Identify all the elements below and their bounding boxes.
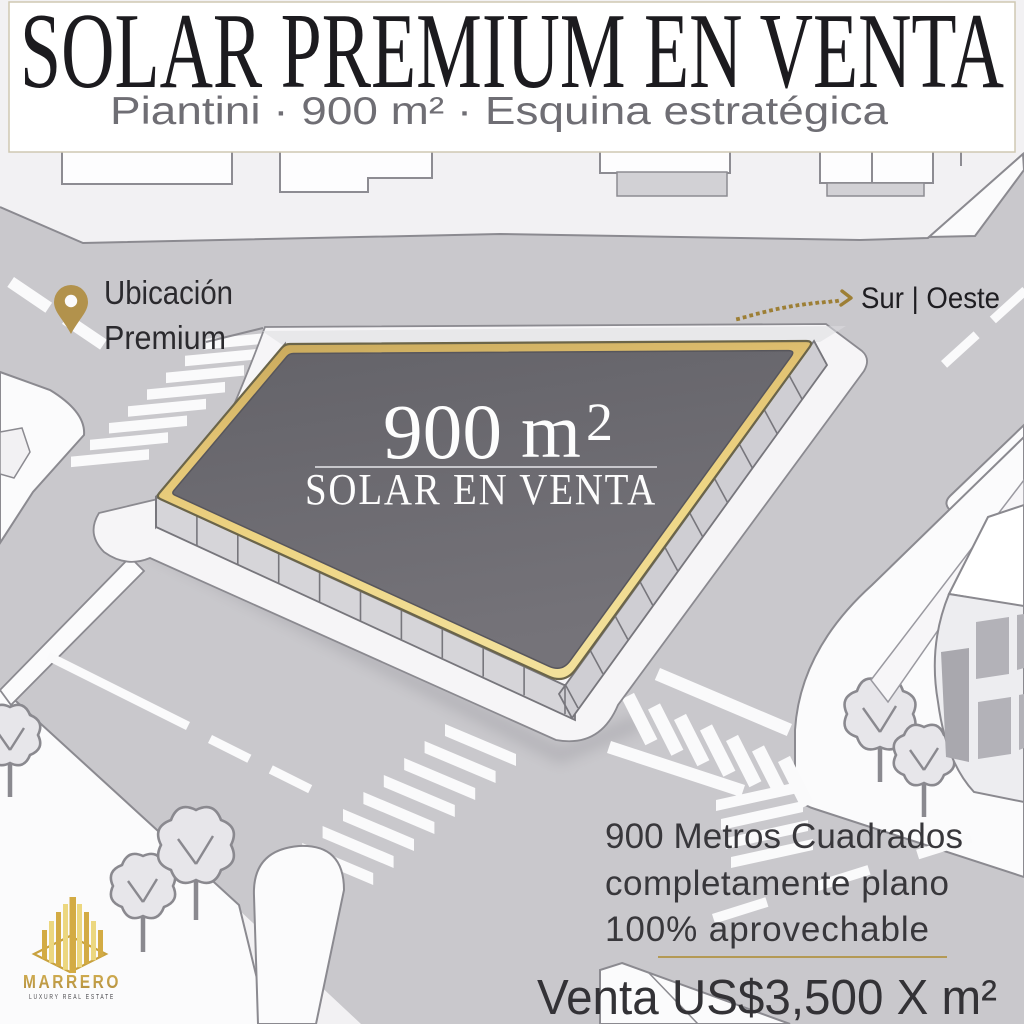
svg-text:m: m: [521, 388, 581, 474]
svg-text:Venta US$3,500 X m²: Venta US$3,500 X m²: [537, 971, 997, 1024]
svg-text:MARRERO: MARRERO: [23, 972, 121, 992]
svg-text:Piantini · 900 m² · Esquina e: Piantini · 900 m² · Esquina estratégica: [110, 90, 888, 133]
svg-text:SOLAR EN VENTA: SOLAR EN VENTA: [305, 465, 657, 514]
svg-text:Premium: Premium: [104, 319, 226, 356]
svg-text:100% aprovechable: 100% aprovechable: [605, 910, 929, 949]
svg-text:Ubicación: Ubicación: [104, 274, 233, 311]
svg-text:2: 2: [586, 392, 613, 452]
svg-text:LUXURY REAL ESTATE: LUXURY REAL ESTATE: [29, 994, 115, 1001]
svg-text:Sur | Oeste: Sur | Oeste: [861, 282, 1000, 315]
svg-text:900 Metros Cuadrados: 900 Metros Cuadrados: [605, 817, 963, 856]
svg-text:completamente plano: completamente plano: [605, 864, 949, 903]
svg-text:900: 900: [383, 388, 502, 475]
